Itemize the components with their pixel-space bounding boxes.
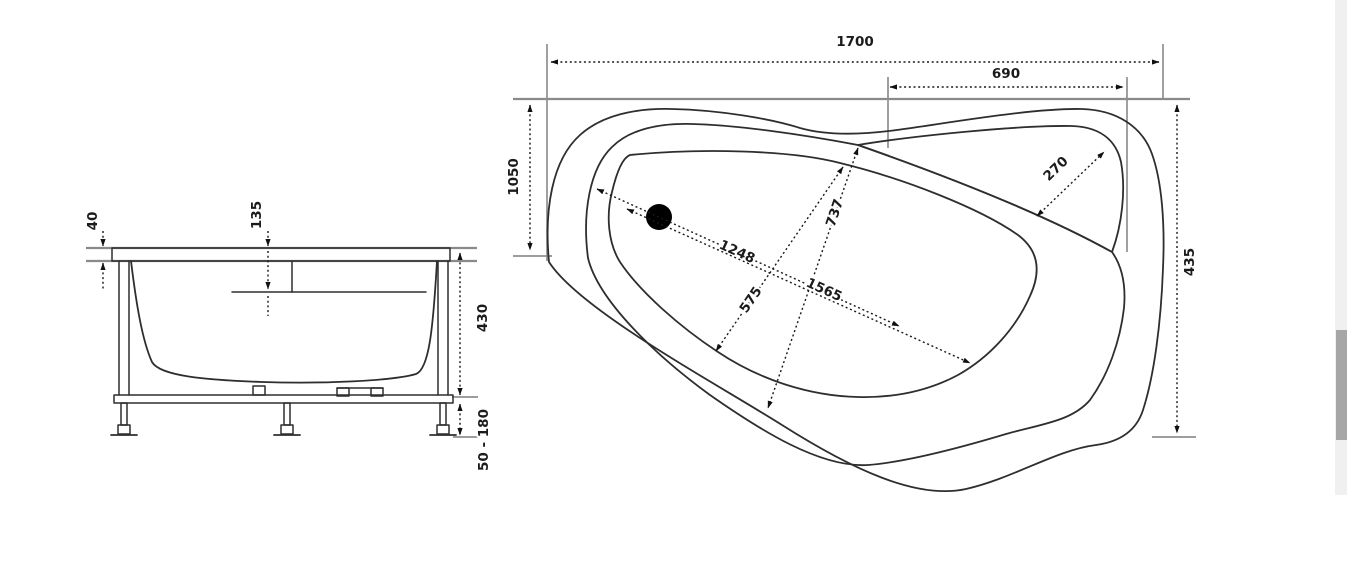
corner-shelf-outline (858, 126, 1123, 252)
dim-label-overall-length: 1700 (836, 34, 874, 50)
dim-label-inner-length: 1565 (804, 275, 845, 305)
tub-rim-section (112, 248, 450, 261)
dim-line-headrest-depth (1037, 152, 1104, 216)
plan-view: 1700 690 1050 435 270 737 575 1248 1565 (506, 34, 1198, 491)
scrollbar-thumb[interactable] (1336, 330, 1347, 440)
bracket-left (253, 386, 265, 395)
leg-right (430, 403, 456, 435)
dim-label-overflow-depth: 135 (249, 201, 265, 229)
dim-label-right-side-width: 435 (1182, 248, 1198, 276)
dim-label-inner-width: 737 (823, 197, 847, 229)
frame-bar (114, 395, 453, 403)
dim-label-headrest-depth: 270 (1040, 153, 1071, 184)
basin-section-outline (131, 261, 437, 383)
drain-hole (646, 204, 672, 230)
dim-label-left-side-width: 1050 (506, 158, 522, 196)
dim-label-floor-width: 575 (736, 284, 765, 316)
dim-label-feet-range: 50 - 180 (476, 409, 492, 471)
bathtub-dimension-drawing: 40 135 430 50 - 180 1700 690 1050 (0, 0, 1347, 567)
leg-left (111, 403, 137, 435)
leg-middle (274, 403, 300, 435)
dim-line-inner-length (627, 209, 970, 363)
drawing-canvas: 40 135 430 50 - 180 1700 690 1050 (0, 0, 1347, 567)
dim-label-rim-height: 40 (85, 212, 101, 231)
dim-label-tub-depth: 430 (475, 304, 491, 332)
dim-label-corner-shelf-width: 690 (992, 66, 1020, 82)
front-view: 40 135 430 50 - 180 (85, 201, 492, 471)
